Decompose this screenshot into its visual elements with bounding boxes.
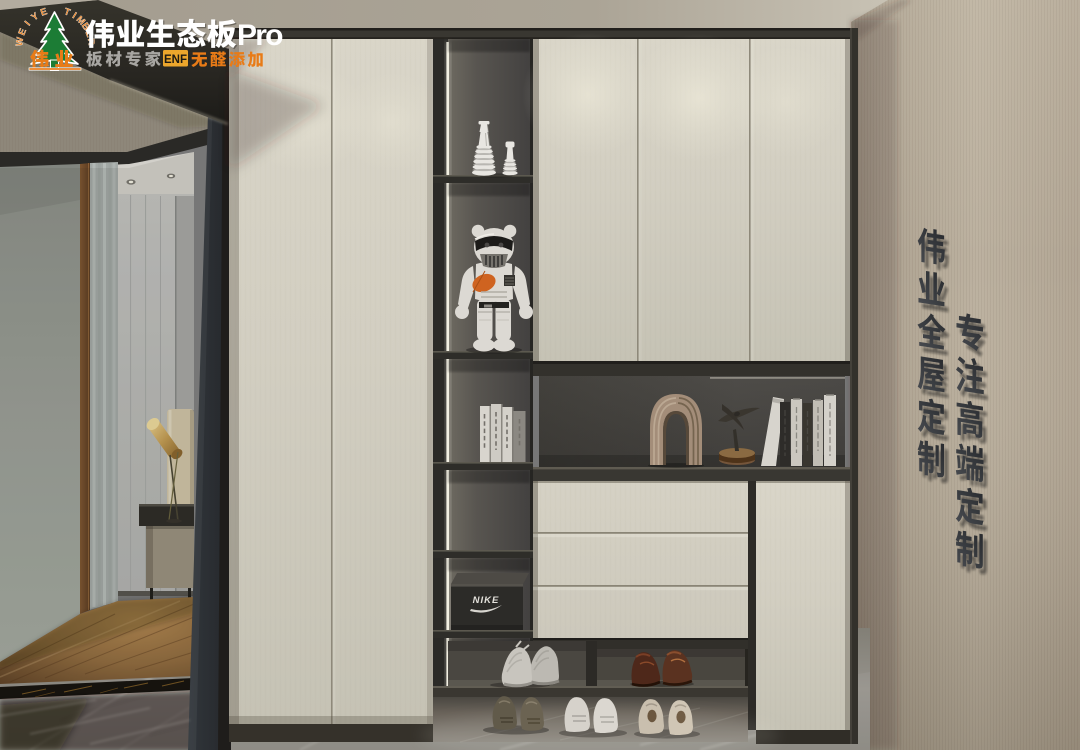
svg-text:W: W <box>14 37 26 47</box>
svg-text:Pro: Pro <box>237 19 283 52</box>
svg-text:NIKE: NIKE <box>473 595 500 606</box>
svg-text:ENF: ENF <box>164 54 187 66</box>
